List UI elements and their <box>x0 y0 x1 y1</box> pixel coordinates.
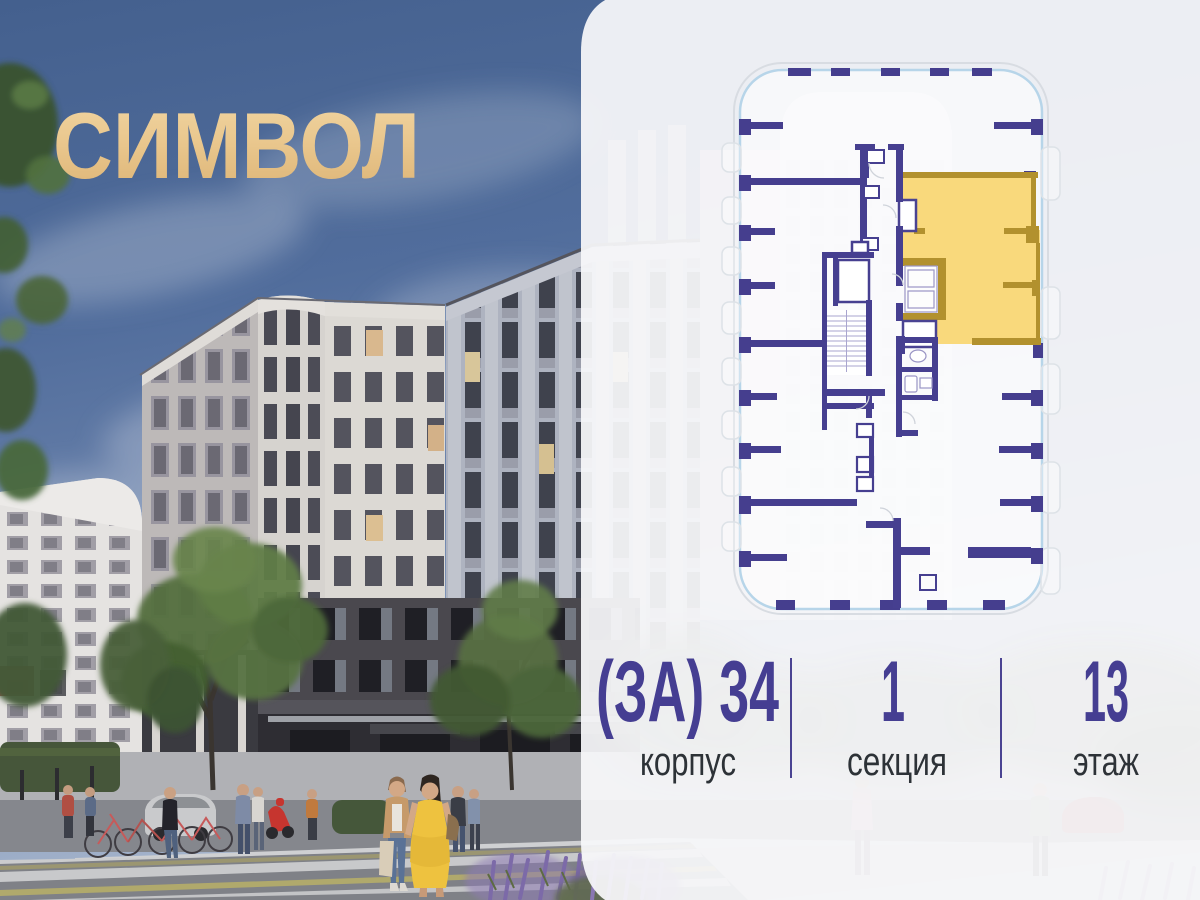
svg-text:СИМВОЛ: СИМВОЛ <box>53 93 420 198</box>
svg-text:секция: секция <box>847 740 947 784</box>
svg-text:корпус: корпус <box>640 740 736 784</box>
svg-text:13: 13 <box>1083 644 1129 740</box>
svg-text:этаж: этаж <box>1073 740 1139 784</box>
svg-text:(ЗА) 34: (ЗА) 34 <box>596 644 779 740</box>
svg-text:1: 1 <box>881 644 905 740</box>
